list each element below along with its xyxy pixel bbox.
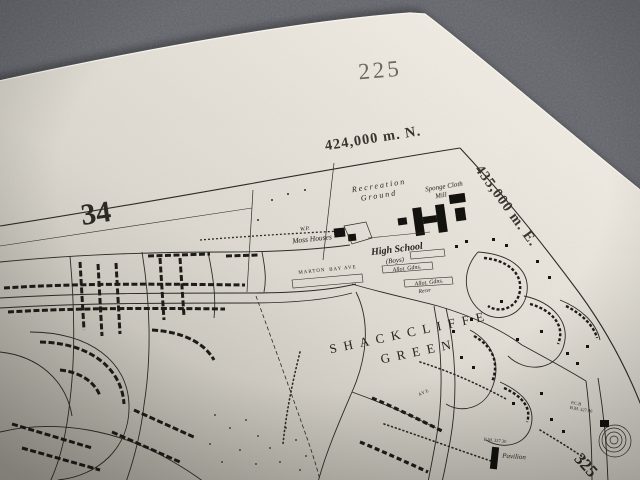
photo-of-paper-map: 225 424,000 m. N. 435,000 m. E. 34 325 R… (0, 0, 640, 480)
photo-vignette (0, 0, 640, 480)
map-photo-graphic (0, 0, 640, 480)
